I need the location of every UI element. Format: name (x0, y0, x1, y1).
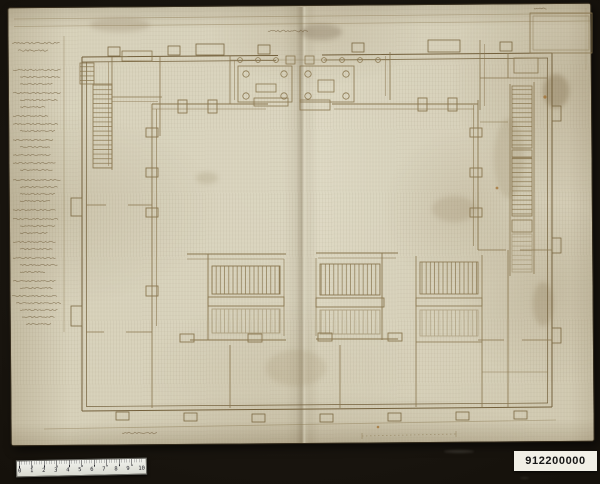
ruler-number: 8 (114, 465, 117, 473)
scale-bar-marks (362, 431, 456, 439)
ruler-number: 4 (66, 466, 69, 474)
ruler-number: 2 (42, 467, 45, 475)
ruler-numbers: 012345678910 (18, 465, 145, 476)
ruler-number: 1 (30, 467, 33, 475)
inventory-number: 912200000 (525, 455, 585, 467)
ruler-number: 3 (54, 467, 57, 475)
right-wing (478, 13, 592, 407)
ruler-number: 9 (126, 465, 129, 473)
courtyard (146, 98, 482, 330)
ruler-number: 5 (78, 466, 81, 474)
secondary-staircase (416, 255, 482, 342)
ruler-number: 0 (18, 467, 21, 475)
left-wing (80, 51, 162, 332)
inventory-label: 912200000 (514, 451, 597, 471)
grand-staircase (180, 253, 402, 342)
floor-plan-drawing (0, 0, 600, 484)
scale-ruler: 012345678910 (16, 458, 147, 478)
ruler-number: 10 (138, 465, 145, 473)
outer-walls (82, 53, 552, 411)
ruler-number: 6 (90, 466, 93, 474)
ruled-border-lines (14, 8, 590, 429)
ruler-number: 7 (102, 465, 105, 473)
